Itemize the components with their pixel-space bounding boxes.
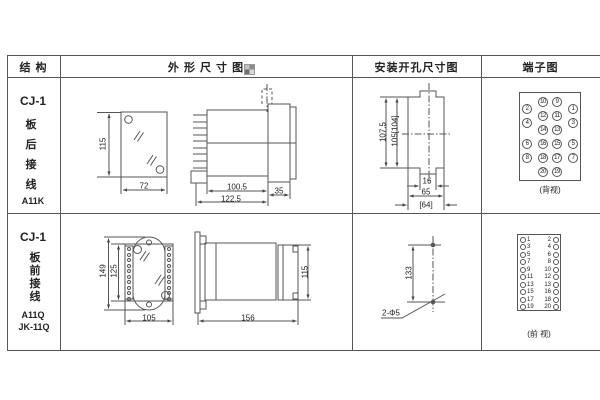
row1-front-view-drawing [97,112,167,194]
terminal-pin-circle: 12 [538,111,548,121]
dim-row1-mount-width: 65 [422,188,431,197]
dim-row1-mount-vouter: 107.5 [379,122,388,142]
strip-hole-circle [520,244,526,250]
broken-image-icon [244,64,255,75]
terminal-pin-circle: 17 [552,153,562,163]
strip-hole-circle [127,264,131,268]
dim-row1-front-width: 72 [140,182,149,191]
column-header-terminal: 端子图 [523,59,559,75]
column-header-mounting: 安装开孔尺寸图 [375,59,459,75]
row1-type-code: A11K [22,196,45,206]
terminal-pin-circle: 19 [552,167,562,177]
strip-hole-circle [167,264,171,268]
row2-type-code-2: JK-11Q [18,322,49,332]
dim-row1-side-body: 100.5 [227,183,247,192]
dim-row1-mount-vinner: 105[104] [391,115,400,146]
dim-row2-front-outer-height: 149 [99,264,108,277]
terminal-pin-circle: 8 [522,153,532,163]
terminal-pin-circle: 6 [522,139,532,149]
dim-row1-front-height: 115 [99,138,108,151]
strip-hole-circle [167,253,171,257]
dim-row1-mount-width-alt: [64] [419,201,432,210]
label-row2-mount-holes: 2-Φ5 [382,309,400,318]
strip-hole-circle [553,252,559,258]
terminal-pin-circle: 18 [538,153,548,163]
strip-hole-circle [127,297,131,301]
strip-hole-circle [520,289,526,295]
strip-hole-circle [520,267,526,273]
terminal-front-caption: (前 视) [527,329,551,340]
strip-hole-circle [127,253,131,257]
strip-hole-circle [553,237,559,243]
strip-hole-circle [553,244,559,250]
strip-hole-circle [553,289,559,295]
dim-row1-side-total: 122.5 [221,195,241,204]
terminal-pin-circle: 11 [552,111,562,121]
strip-hole-circle [553,259,559,265]
dimension-drawing-lines [0,0,600,400]
terminal-pin-circle: 16 [538,139,548,149]
strip-hole-circle [520,274,526,280]
terminal-pin-circle: 4 [522,118,532,128]
terminal-pin-circle: 14 [538,125,548,135]
relay-datasheet-drawing: 结 构 外 形 尺 寸 图 安装开孔尺寸图 端子图 CJ-1 板 后 接 线 A… [0,0,600,400]
terminal-pin-circle: 1 [568,104,578,114]
dim-row2-front-width: 105 [142,314,155,323]
dim-row2-side-total: 156 [241,314,254,323]
row2-side-view-drawing [195,232,311,325]
terminal-pin-circle: 13 [552,125,562,135]
dim-row2-mount-spacing: 133 [405,266,414,279]
strip-hole-circle [127,247,131,251]
strip-hole-circle [167,275,171,279]
terminal-pin-number: 20 [539,303,551,311]
row2-wiring-char-4: 线 [30,288,41,304]
terminal-pin-circle: 15 [552,139,562,149]
terminal-back-caption: (背视) [539,185,560,196]
terminal-pin-circle: 20 [538,167,548,177]
row2-front-view-drawing [104,237,173,325]
strip-hole-circle [553,282,559,288]
column-header-outline: 外 形 尺 寸 图 [168,59,244,75]
strip-hole-circle [553,304,559,310]
strip-hole-circle [520,304,526,310]
column-header-structure: 结 构 [19,59,47,75]
terminal-pin-circle: 10 [538,97,548,107]
row1-model: CJ-1 [20,94,46,108]
row2-model: CJ-1 [20,230,46,244]
dim-row2-side-height: 115 [301,266,310,279]
table-grid [7,56,600,351]
strip-hole-circle [520,259,526,265]
strip-hole-circle [127,286,131,290]
dim-row2-front-inner-height: 125 [110,264,119,277]
row1-wiring-char-3: 接 [26,156,37,172]
strip-hole-circle [127,275,131,279]
strip-hole-circle [520,297,526,303]
strip-hole-circle [167,286,171,290]
row1-wiring-char-2: 后 [26,136,37,152]
dim-row1-mount-notch: 16 [423,177,432,186]
terminal-pin-circle: 7 [568,153,578,163]
terminal-pin-circle: 2 [522,104,532,114]
strip-hole-circle [167,297,171,301]
strip-hole-circle [520,282,526,288]
row2-type-code-1: A11Q [21,310,44,320]
strip-hole-circle [167,247,171,251]
terminal-pin-number: 19 [527,303,539,311]
strip-hole-circle [553,297,559,303]
dim-row1-side-flange: 35 [275,187,284,196]
strip-hole-circle [553,267,559,273]
row1-wiring-char-1: 板 [26,116,37,132]
strip-hole-circle [553,274,559,280]
strip-hole-circle [520,237,526,243]
terminal-pin-circle: 3 [568,118,578,128]
strip-hole-circle [520,252,526,258]
row1-wiring-char-4: 线 [26,176,37,192]
terminal-pin-circle: 5 [568,139,578,149]
terminal-pin-circle: 9 [552,97,562,107]
